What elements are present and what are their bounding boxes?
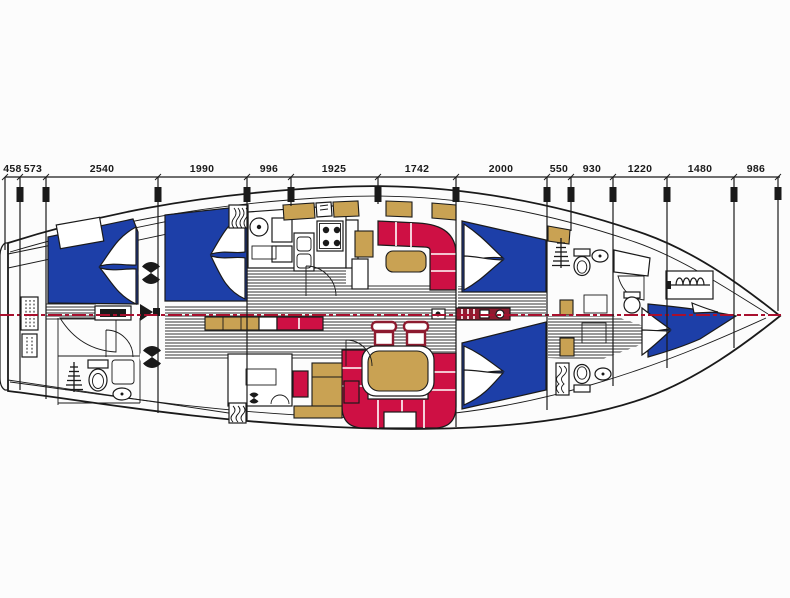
layout-plan-svg: 458 573 2540 1990 996 1925 1742 2000 550… (0, 0, 790, 598)
deck-hardware-markers (17, 187, 782, 202)
arrow-icon (140, 304, 153, 321)
toilet-icon (574, 249, 590, 276)
salon-settee-upper (352, 221, 456, 290)
toilet-icon (624, 292, 640, 313)
dimension-label: 930 (583, 163, 601, 175)
dimension-label: 1220 (628, 163, 653, 175)
dimension-labels: 458 573 2540 1990 996 1925 1742 2000 550… (3, 163, 765, 175)
yacht-layout-plan: 458 573 2540 1990 996 1925 1742 2000 550… (0, 0, 790, 598)
dimension-label: 1990 (190, 163, 215, 175)
seat-cushion (344, 381, 359, 403)
dimension-label: 996 (260, 163, 278, 175)
vent-coil-icon (229, 205, 248, 228)
dimension-label: 573 (24, 163, 42, 175)
chair (404, 322, 428, 345)
helm-wheel-icon (139, 262, 164, 284)
stern-platform (0, 243, 8, 390)
dimension-label: 986 (747, 163, 765, 175)
salon-table-small (386, 251, 426, 272)
aft-head (58, 318, 164, 405)
door-arc (106, 330, 133, 357)
chair (372, 322, 396, 345)
nav-station (228, 354, 359, 423)
dimension-label: 2000 (489, 163, 514, 175)
aft-cabin (48, 206, 247, 321)
sink-icon (294, 233, 314, 271)
shower-grate-icon (584, 295, 607, 313)
pillow (692, 303, 718, 313)
dimension-label: 1742 (405, 163, 430, 175)
stove-icon (317, 221, 343, 251)
dimension-label: 2540 (90, 163, 115, 175)
nav-seat-cushion (293, 371, 308, 397)
dimension-label: 550 (550, 163, 568, 175)
toilet-icon (88, 360, 108, 391)
dimension-label: 1925 (322, 163, 347, 175)
sink-icon (112, 360, 134, 384)
companionway-ladder-icon (65, 362, 83, 392)
coil-icon (229, 403, 246, 423)
dimension-label: 1480 (688, 163, 713, 175)
dimension-label: 458 (3, 163, 21, 175)
salon-table (368, 351, 428, 391)
coil-icon (556, 363, 569, 395)
toilet-icon (574, 365, 590, 393)
stern-equipment-boxes (21, 297, 38, 357)
speaker-icon (140, 346, 165, 368)
